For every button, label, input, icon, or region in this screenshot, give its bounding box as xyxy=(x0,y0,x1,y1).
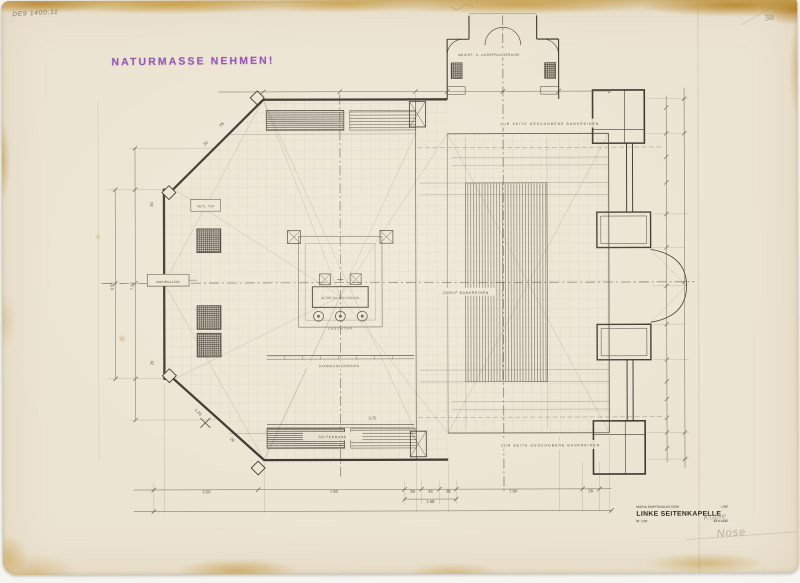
label-bench-rows: ZWÖLF BANKREIHEN xyxy=(443,291,489,295)
naturmasse-stamp: NATURMASSE NEHMEN! xyxy=(111,55,274,69)
scanned-drawing: 2.567.902843287.90281.686.567.3028303028… xyxy=(0,0,800,583)
dimension-label: 28 xyxy=(229,436,236,443)
floor-plan: 2.567.902843287.90281.686.567.3028303028… xyxy=(1,0,799,575)
label-benches-top: ZUR SEITE GESCHOBENE BANKREIHEN xyxy=(500,122,599,126)
dimension-label: 7.90 xyxy=(330,489,339,494)
label-marienaltar: MARIENALTAR xyxy=(156,280,180,284)
label-leuchter: LEUCHTER xyxy=(328,326,353,330)
dimension-label: 28 xyxy=(588,488,593,493)
dimension-label: 1.68 xyxy=(426,499,435,504)
label-niche: SEITL. TÜR xyxy=(197,204,214,208)
label-kommunionbank: KOMMUNIONBANK xyxy=(319,364,360,368)
bench-rows-block xyxy=(465,183,547,382)
label-beichtraum: BEICHT- U. AUSSPRACHERAUM xyxy=(458,53,519,57)
dimension-label: 28 xyxy=(446,489,451,494)
dimension-label: 30 xyxy=(149,201,154,206)
dimension-label: 7.30 xyxy=(129,282,134,291)
dimension-label: 2.56 xyxy=(203,489,212,494)
dimension-label: 6.56 xyxy=(109,282,114,291)
title-block-project: MARIA EMPFÄNGNIS DOM xyxy=(636,505,679,509)
dimension-label: 28 xyxy=(149,360,154,365)
label-altar: ALTAR CA.180×100×100 xyxy=(321,296,359,300)
dimension-label: 3.75 xyxy=(369,416,378,421)
dimension-label: 1.33 xyxy=(194,407,204,417)
title-block-scale: M. 1:20 xyxy=(636,519,647,523)
label-seitenbank: SEITENBANK xyxy=(319,435,347,439)
fold-crease xyxy=(698,0,700,573)
dimension-label: 30 xyxy=(202,139,209,146)
drawing-sheet: 2.567.902843287.90281.686.567.3028303028… xyxy=(1,0,799,575)
title-block-city: LINZ xyxy=(721,505,728,509)
label-benches-bottom: ZUR SEITE GESCHOBENE BANKREIHEN xyxy=(501,443,600,447)
dimension-label: 28 xyxy=(218,121,225,128)
dimension-label: 7.90 xyxy=(509,488,518,493)
pencil-note-2: Nose xyxy=(716,526,746,540)
dimension-label: 43 xyxy=(428,489,433,494)
corner-pencil-mark: 3a xyxy=(763,11,774,23)
dimension-label: 28 xyxy=(410,489,415,494)
